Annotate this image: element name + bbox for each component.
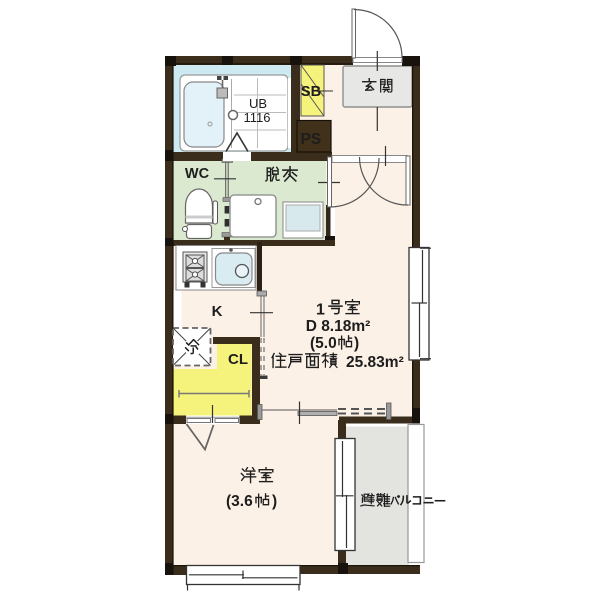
svg-text:UB: UB xyxy=(249,96,267,111)
svg-text:(5.0: (5.0 xyxy=(310,335,337,352)
svg-text:WC: WC xyxy=(185,166,210,182)
svg-text:25.83m²: 25.83m² xyxy=(346,354,404,371)
svg-text:): ) xyxy=(354,335,359,352)
svg-text:1116: 1116 xyxy=(244,110,271,125)
svg-text:D 8.18m²: D 8.18m² xyxy=(306,318,371,335)
svg-text:CL: CL xyxy=(228,351,248,368)
svg-text:): ) xyxy=(272,493,277,510)
svg-text:(3.6: (3.6 xyxy=(226,493,253,510)
svg-text:SB: SB xyxy=(301,84,321,100)
svg-text:K: K xyxy=(212,303,223,320)
svg-text:1: 1 xyxy=(316,302,325,319)
svg-text:PS: PS xyxy=(301,131,322,148)
